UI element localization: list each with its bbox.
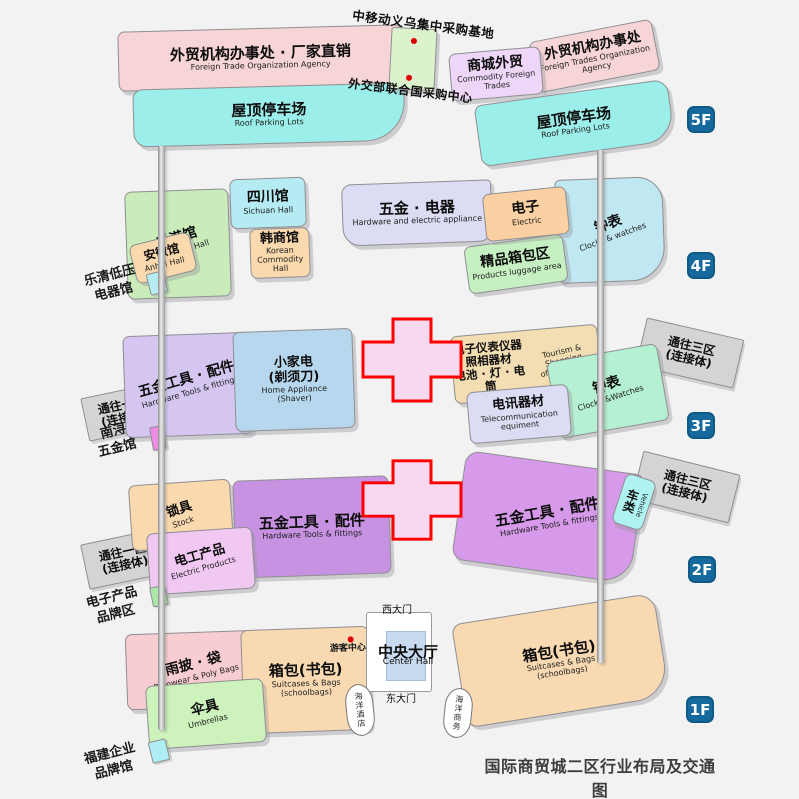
section-4f-hardware-electric: 五金 · 电器 Hardware and electric appliance <box>341 179 493 246</box>
trade-mart-floor-map: 外贸机构办事处 · 厂家直销 Foreign Trade Organizatio… <box>0 0 799 799</box>
floor-badge-5f: 5F <box>687 106 715 133</box>
ocean-business-label: 海洋商务 <box>451 695 466 732</box>
side-label-electronics-brand-zone: 电子产品 品牌区 <box>85 584 144 629</box>
floor-badge-1f: 1F <box>686 696 714 723</box>
label-group: 电子 Electric <box>510 200 542 229</box>
label-group: 箱包(书包) Suitcases & Bags (schoolbags) <box>521 637 599 684</box>
label-group: 钟表 Clocks & watches <box>573 206 648 254</box>
section-label-en: Suitcases & Bags (schoolbags) <box>272 679 342 699</box>
ramp-label: 通往三区 (连接体) <box>664 335 717 372</box>
red-dot-marker <box>348 636 354 642</box>
label-group: 五金工具 · 配件 Hardware Tools & fittings <box>258 512 365 542</box>
section-1f-suitcases-bags-right: 箱包(书包) Suitcases & Bags (schoolbags) <box>451 593 670 729</box>
label-group: 五金工具 · 配件 Hardware Tools & fittings <box>493 495 602 540</box>
ocean-hotel-label: 海洋酒店 <box>353 692 368 729</box>
section-label-en: Roof Parking Lots <box>235 119 304 130</box>
label-group: 钟表 Clocks &Watches <box>571 368 644 414</box>
section-4f-korean-commodity-hall: 韩商馆 Korean Commodity Hall <box>249 227 311 279</box>
center-hall-label-en: Center Hall <box>372 657 444 667</box>
section-4f-clocks-watches: 钟表 Clocks & watches <box>554 176 666 284</box>
label-group: 电工产品 Electric Products <box>166 540 237 582</box>
section-label-en: Hardware and electric appliance <box>352 215 482 228</box>
floor-badge-4f: 4F <box>687 252 715 279</box>
section-label-en: Foreign Trade Organization Agency <box>191 61 331 74</box>
section-4f-electric: 电子 Electric <box>482 186 571 243</box>
map-title: 国际商贸城二区行业布局及交通图 The Major Industry layou… <box>478 753 722 799</box>
section-label-en: Sichuan Hall <box>243 206 293 217</box>
connector-cross-2f <box>360 458 464 542</box>
red-dot-marker <box>406 75 412 81</box>
section-label-cn: 四川馆 <box>247 189 290 206</box>
ramp-label: 通往三区 (连接体) <box>659 468 712 506</box>
section-label-cn: 韩商馆 <box>260 231 299 247</box>
label-group: 五金工具 · 配件 Hardware Tools & fittings <box>136 359 239 411</box>
section-label-en: Korean Commodity Hall <box>251 246 310 275</box>
label-group: 韩商馆 Korean Commodity Hall <box>250 231 309 275</box>
floor-badge-2f: 2F <box>688 556 716 583</box>
label-group: 外贸机构办事处 · 厂家直销 Foreign Trade Organizatio… <box>170 42 352 73</box>
section-label-cn: 屋顶停车场 <box>231 101 306 120</box>
support-pole-left <box>158 146 165 730</box>
label-group: 屋顶停车场 Roof Parking Lots <box>231 101 307 130</box>
label-group: 箱包(书包) Suitcases & Bags (schoolbags) <box>269 661 344 699</box>
section-4f-luggage-area: 精品箱包区 Products luggage area <box>463 233 569 294</box>
floor-badge-3f: 3F <box>687 412 715 439</box>
section-4f-sichuan-hall: 四川馆 Sichuan Hall <box>229 177 307 230</box>
section-label-en: Hardware Tools & fittings <box>262 530 362 542</box>
west-gate-label: 西大门 <box>382 601 412 616</box>
section-3f-telecom-equipment: 电讯器材 Telecommunication equiment <box>466 384 572 445</box>
support-pole-right <box>597 150 604 663</box>
label-group: 五金 · 电器 Hardware and electric appliance <box>352 197 482 228</box>
ocean-business-bubble: 海洋商务 <box>441 687 474 740</box>
east-gate-label: 东大门 <box>386 690 416 705</box>
label-group: 四川馆 Sichuan Hall <box>243 189 294 216</box>
label-group: 精品箱包区 Products luggage area <box>470 245 563 283</box>
side-label-yueqing-lowvoltage: 乐清低压 电器馆 <box>83 262 142 307</box>
section-label-cn: 小家电 (剃须刀) <box>268 355 320 386</box>
label-group: 小家电 (剃须刀) Home Appliance (Shaver) <box>260 355 327 405</box>
connector-cross-3f <box>360 316 464 404</box>
label-group: 伞具 Umbrellas <box>183 697 228 732</box>
red-dot-marker <box>411 38 417 44</box>
side-label-fujian-brand-hall: 福建企业 品牌馆 <box>83 740 142 785</box>
label-group: 外贸机构办事处 Foreign Trades Organization Agen… <box>531 27 658 84</box>
label-group: 屋顶停车场 Roof Parking Lots <box>535 105 613 142</box>
map-title-cn: 国际商贸城二区行业布局及交通图 <box>478 753 722 799</box>
section-label-en: Electric <box>512 216 542 228</box>
label-group: 电讯器材 Telecommunication equiment <box>479 394 559 434</box>
label-group: 锁具 Stock <box>165 499 197 530</box>
section-3f-home-appliance: 小家电 (剃须刀) Home Appliance (Shaver) <box>232 328 355 432</box>
section-label-en: Home Appliance (Shaver) <box>261 385 327 405</box>
